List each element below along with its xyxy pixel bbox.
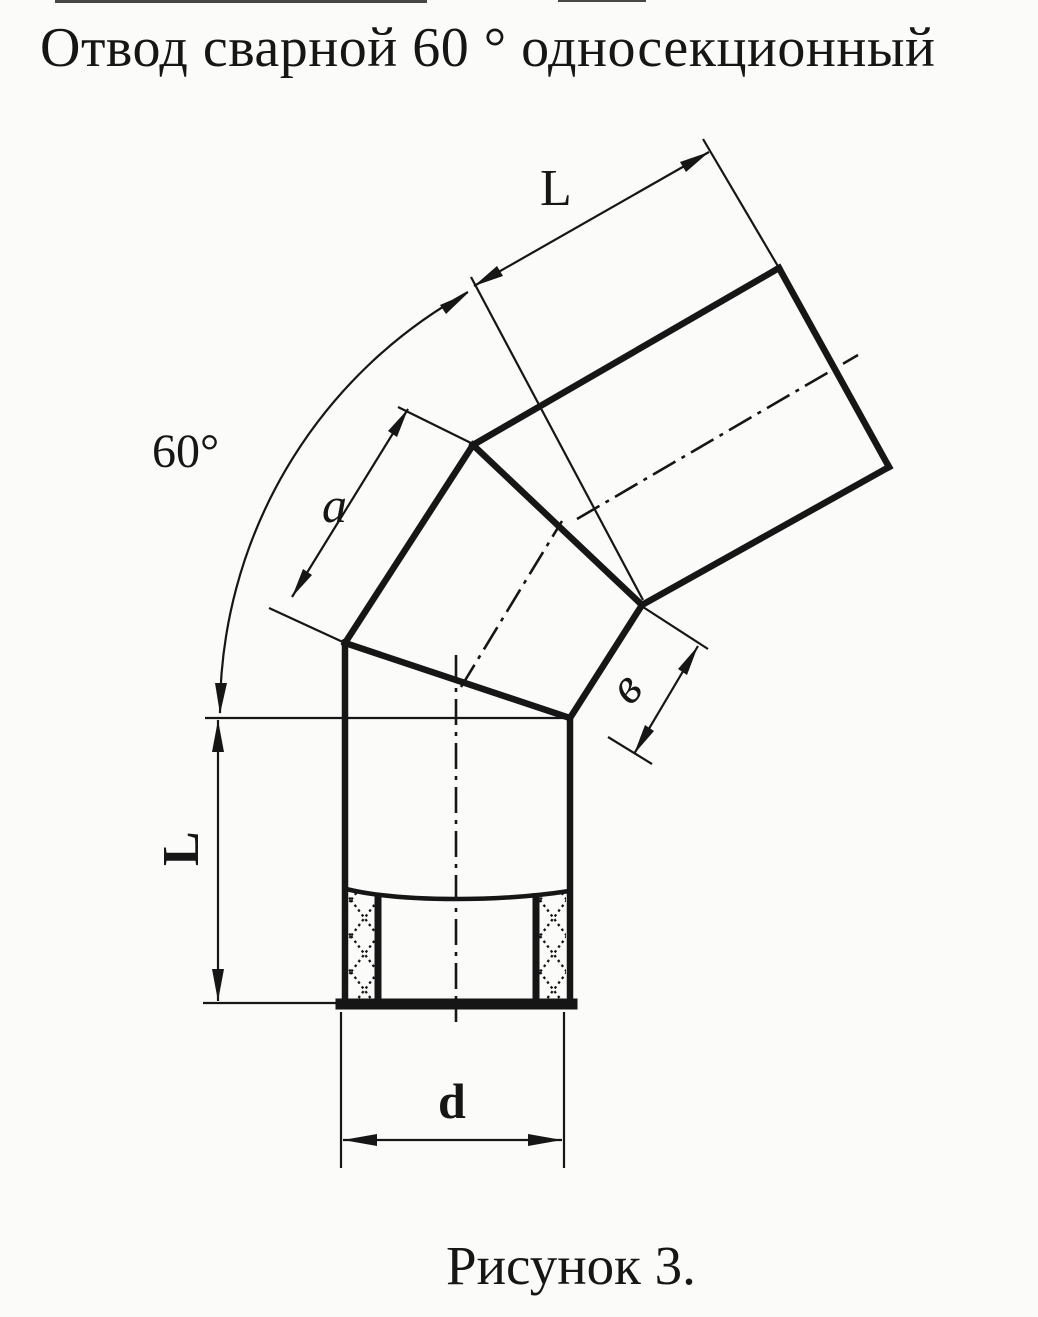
- section-width-extension-lower: [608, 737, 652, 764]
- top-pipe-lower-wall: [642, 467, 889, 605]
- arrow-bottom-length-bottom: [212, 969, 224, 1001]
- dimension-labels: 60° L a в L d: [152, 160, 653, 1129]
- center-lines: [456, 355, 858, 1022]
- arrow-diameter-left: [343, 1134, 377, 1146]
- mid-section-left-wall: [345, 445, 473, 643]
- top-pipe-end-face: [779, 268, 889, 467]
- arrow-section-width-upper: [678, 646, 698, 675]
- arrow-bottom-length-top: [212, 720, 224, 752]
- arrow-section-side-upper: [388, 409, 408, 437]
- arrow-top-length-upper: [680, 152, 709, 172]
- top-length-dimension-line: [474, 152, 709, 286]
- mid-section-centerline: [461, 521, 562, 687]
- bottom-length-label: L: [153, 831, 210, 866]
- diameter-label: d: [438, 1073, 466, 1129]
- arrow-top-length-lower: [474, 266, 503, 286]
- scanned-document-page: Отвод сварной 60 ° односекционный: [0, 0, 1038, 1317]
- top-pipe-centerline: [577, 355, 858, 519]
- arrowheads: [212, 152, 709, 1146]
- upper-weld-joint: [473, 445, 642, 605]
- top-length-label: L: [540, 160, 572, 217]
- top-length-extension-lower: [471, 277, 643, 600]
- top-pipe-upper-wall: [473, 268, 779, 445]
- top-length-extension-upper: [703, 139, 779, 268]
- elbow-technical-drawing: 60° L a в L d: [0, 0, 1038, 1317]
- arrow-section-side-lower: [292, 569, 312, 597]
- gasket-hatch-left: [348, 893, 375, 1002]
- lower-weld-joint: [345, 643, 570, 718]
- angle-label: 60°: [152, 425, 219, 478]
- arrow-arc-bottom: [215, 683, 227, 714]
- scan-artifacts: [55, 0, 646, 3]
- arrow-section-width-lower: [634, 725, 654, 754]
- elbow-outline: [345, 268, 889, 1004]
- figure-caption: Рисунок 3.: [446, 1234, 696, 1297]
- section-width-extension-upper: [643, 607, 708, 649]
- arrow-arc-top: [440, 293, 468, 314]
- section-width-label: в: [597, 660, 653, 714]
- gasket-hatch-right: [539, 893, 566, 1002]
- end-face-centerline-tick: [824, 347, 848, 390]
- section-side-label: a: [322, 477, 347, 533]
- section-side-extension-lower: [269, 608, 345, 643]
- arrow-diameter-right: [528, 1134, 562, 1146]
- section-side-extension-upper: [398, 407, 473, 444]
- dimension-lines: [203, 139, 848, 1168]
